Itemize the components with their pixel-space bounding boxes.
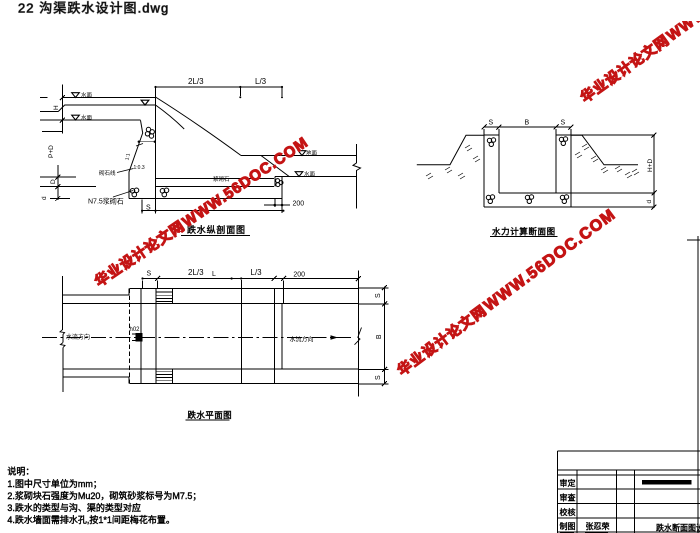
svg-text:水面: 水面 (81, 91, 93, 99)
svg-text:L/3: L/3 (251, 268, 263, 277)
svg-text:d: d (646, 200, 653, 204)
svg-text:跌水平面图: 跌水平面图 (188, 410, 233, 420)
svg-text:D: D (50, 179, 57, 184)
svg-text:跌水断面图设计: 跌水断面图设计 (656, 522, 700, 532)
svg-text:S: S (561, 120, 566, 127)
svg-text:3.跌水的类型与沟、渠的类型对应: 3.跌水的类型与沟、渠的类型对应 (7, 502, 141, 513)
svg-text:2L/3: 2L/3 (188, 77, 204, 86)
svg-text:1:0.3: 1:0.3 (134, 165, 145, 171)
svg-text:张忍荣: 张忍荣 (586, 521, 610, 531)
svg-text:说明：: 说明： (7, 466, 34, 477)
svg-text:制图: 制图 (560, 521, 576, 531)
svg-text:H: H (53, 105, 60, 110)
svg-text:水流方向: 水流方向 (290, 336, 314, 344)
svg-text:砌石线: 砌石线 (99, 169, 116, 177)
svg-text:2L/3: 2L/3 (188, 268, 204, 277)
svg-text:水力计算断面图: 水力计算断面图 (492, 227, 556, 237)
svg-text:d: d (41, 196, 48, 200)
svg-text:审定: 审定 (560, 478, 576, 488)
svg-text:22 沟渠跌水设计图.dwg: 22 沟渠跌水设计图.dwg (18, 1, 169, 16)
svg-text:水流方向: 水流方向 (66, 333, 90, 341)
svg-text:审查: 审查 (560, 492, 576, 502)
svg-text:1.图中尺寸单位为mm；: 1.图中尺寸单位为mm； (7, 478, 102, 489)
svg-text:B: B (525, 120, 530, 127)
svg-text:2.浆砌块石强度为Mu20，砌筑砂浆标号为M7.5；: 2.浆砌块石强度为Mu20，砌筑砂浆标号为M7.5； (7, 490, 201, 501)
svg-text:浆砌石: 浆砌石 (213, 175, 230, 183)
svg-text:水面: 水面 (81, 113, 93, 121)
svg-text:B: B (376, 334, 383, 339)
svg-text:4.跌水墙面需排水孔,按1*1间距梅花布置。: 4.跌水墙面需排水孔,按1*1间距梅花布置。 (7, 514, 175, 525)
svg-text:S: S (489, 120, 494, 127)
svg-text:校核: 校核 (560, 507, 576, 517)
svg-text:N7.5浆砌石: N7.5浆砌石 (88, 197, 124, 206)
svg-text:水面: 水面 (304, 170, 316, 178)
svg-text:L: L (212, 271, 216, 278)
svg-text:S: S (147, 271, 152, 278)
svg-text:P+D: P+D (48, 145, 55, 158)
svg-text:L/3: L/3 (255, 77, 267, 86)
svg-text:200: 200 (293, 201, 305, 208)
svg-text:S: S (146, 205, 151, 212)
svg-text:S: S (375, 293, 382, 298)
svg-text:200: 200 (293, 272, 305, 279)
svg-text:S: S (375, 375, 382, 380)
svg-text:h02: h02 (130, 327, 141, 333)
svg-text:H+D: H+D (647, 159, 654, 172)
